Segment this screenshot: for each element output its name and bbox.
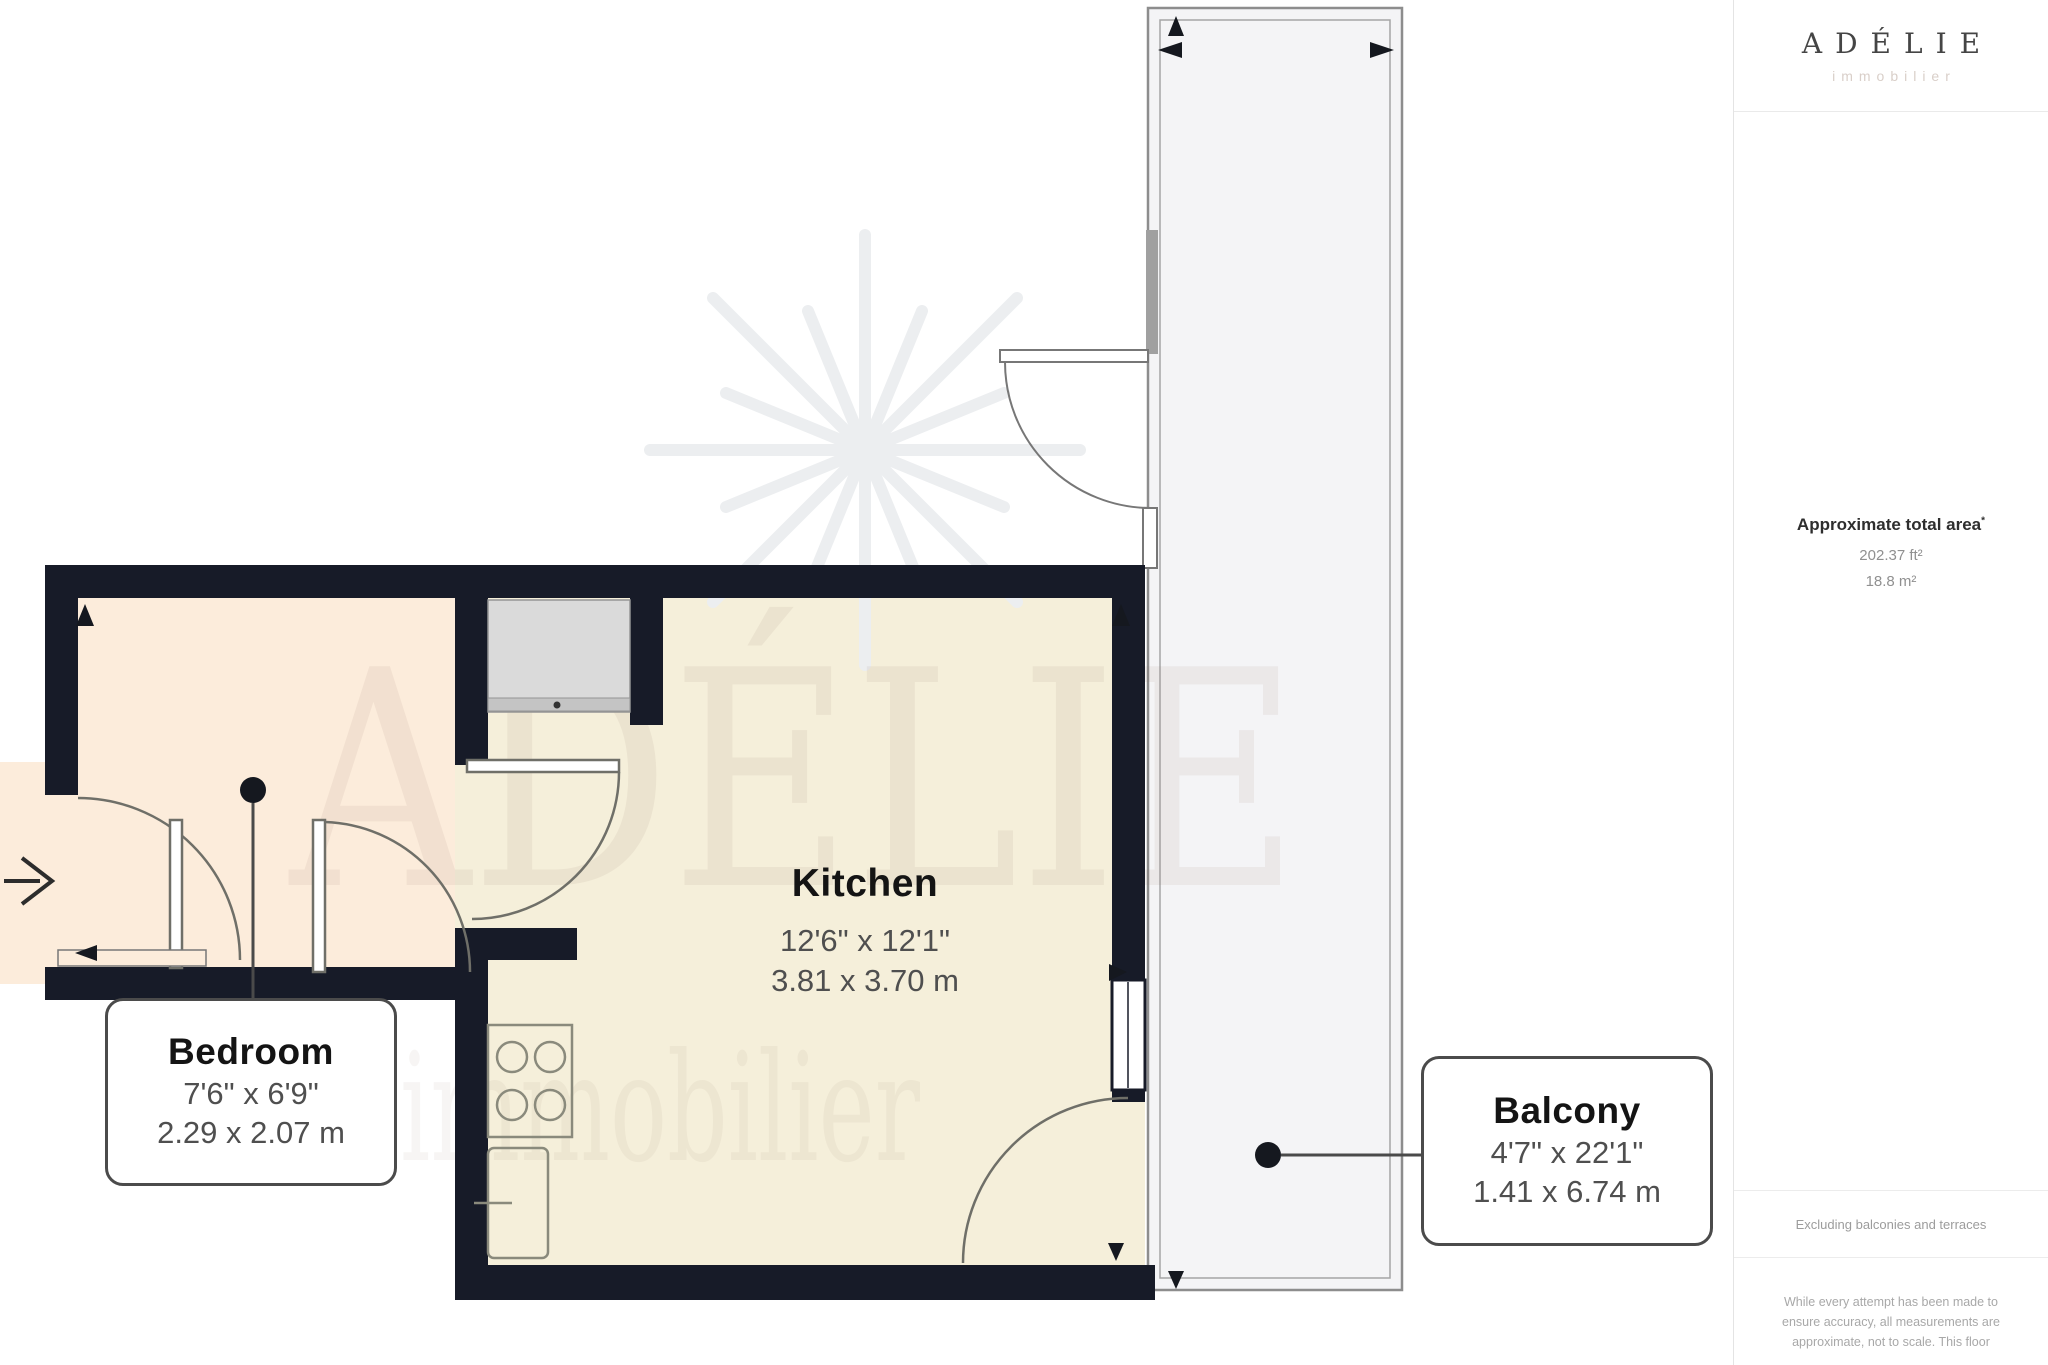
wall-right-upper xyxy=(1112,598,1145,980)
exclusion-note-block: Excluding balconies and terraces xyxy=(1734,1190,2048,1258)
balcony-wall-segment xyxy=(1146,230,1158,354)
wall-kitchen-bottom xyxy=(455,1265,1155,1300)
balcony-name: Balcony xyxy=(1493,1090,1640,1133)
kitchen-dim-imperial: 12'6" x 12'1" xyxy=(780,921,950,961)
kitchen-door-leaf xyxy=(467,760,619,772)
wall-top xyxy=(45,565,1145,598)
door-swing-arc xyxy=(1005,362,1151,508)
floorplan-page: ADÉLIE immobilier xyxy=(0,0,2048,1365)
total-area-block: Approximate total area* 202.37 ft² 18.8 … xyxy=(1734,515,2048,590)
bedroom-label: Bedroom 7'6" x 6'9" 2.29 x 2.07 m xyxy=(105,998,397,1186)
closet xyxy=(488,600,630,712)
balcony-dim-metric: 1.41 x 6.74 m xyxy=(1473,1172,1661,1212)
balcony-window-frame xyxy=(1112,980,1145,1090)
balcony-top-door xyxy=(1000,350,1157,568)
wall-divider-upper xyxy=(455,598,488,765)
brand-logo: ADÉLIE xyxy=(1789,27,1993,60)
total-area-footnote-marker: * xyxy=(1981,515,1985,526)
snowflake-watermark-icon xyxy=(650,235,1080,665)
entry-landing-floor xyxy=(0,762,45,984)
total-area-title-text: Approximate total area xyxy=(1797,515,1981,534)
total-area-title: Approximate total area* xyxy=(1734,515,2048,535)
sidebar: ADÉLIE immobilier Approximate total area… xyxy=(1733,0,2048,1365)
balcony-label: Balcony 4'7" x 22'1" 1.41 x 6.74 m xyxy=(1421,1056,1713,1246)
balcony-dim-imperial: 4'7" x 22'1" xyxy=(1491,1133,1644,1173)
balcony-leader-dot xyxy=(1255,1142,1281,1168)
bedroom-door-leaf xyxy=(313,820,325,972)
hall-door-leaf xyxy=(170,820,182,968)
bedroom-leader-dot xyxy=(240,777,266,803)
kitchen-label: Kitchen 12'6" x 12'1" 3.81 x 3.70 m xyxy=(665,862,1065,1000)
brand-logo-sub: immobilier xyxy=(1826,68,1956,84)
closet-door-marker xyxy=(554,702,561,709)
wall-left xyxy=(45,565,78,795)
wall-closet-stub xyxy=(630,598,663,725)
disclaimer-note: While every attempt has been made to ens… xyxy=(1734,1292,2048,1352)
total-area-imperial: 202.37 ft² xyxy=(1734,547,2048,564)
bedroom-dim-imperial: 7'6" x 6'9" xyxy=(183,1074,319,1114)
kitchen-name: Kitchen xyxy=(792,862,939,907)
kitchen-dim-metric: 3.81 x 3.70 m xyxy=(771,961,959,1001)
wall-divider-stub xyxy=(455,928,577,960)
total-area-metric: 18.8 m² xyxy=(1734,573,2048,590)
wall-corridor-bottom xyxy=(45,967,470,1000)
logo-block: ADÉLIE immobilier xyxy=(1734,0,2048,112)
exclusion-note: Excluding balconies and terraces xyxy=(1796,1217,1987,1232)
bedroom-name: Bedroom xyxy=(168,1031,334,1074)
wall-right-stub xyxy=(1112,1090,1145,1102)
bedroom-dim-metric: 2.29 x 2.07 m xyxy=(157,1113,345,1153)
